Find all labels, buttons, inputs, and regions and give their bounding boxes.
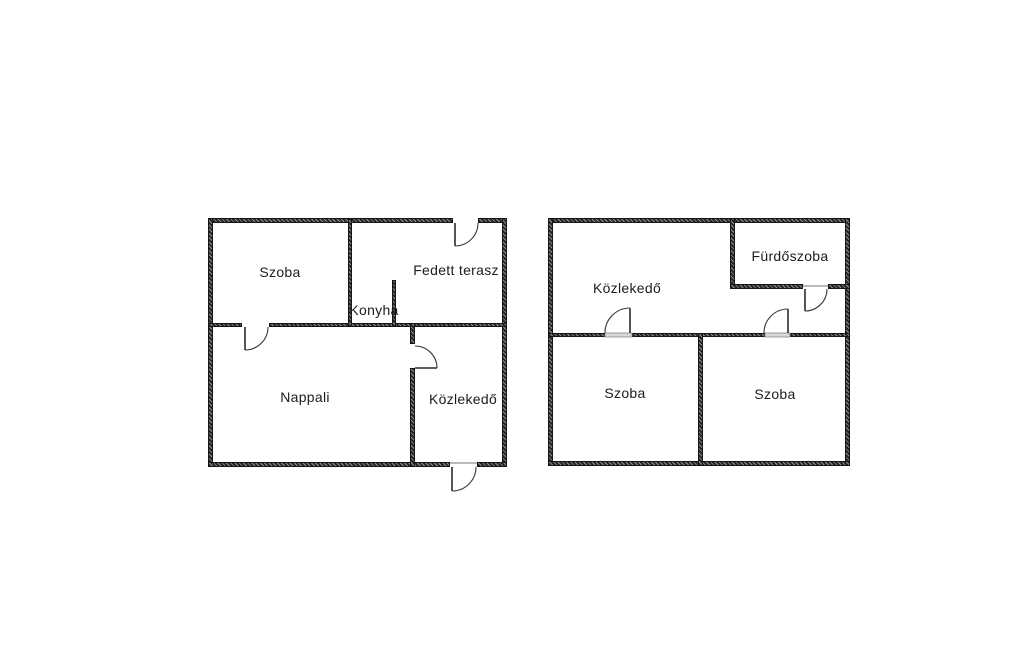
door-szoba-right [764, 309, 790, 337]
wall-mid-horizontal [548, 333, 605, 337]
wall-outer-top [208, 218, 453, 223]
room-label-furdoszoba: Fürdőszoba [752, 248, 829, 264]
wall-bathroom-bottom [730, 284, 803, 289]
door-symbols-layer [0, 0, 1024, 658]
wall-outer-right [845, 218, 850, 466]
wall-szoba-divider [698, 333, 703, 466]
wall-mid-horizontal [790, 333, 850, 337]
wall-mid-horizontal [269, 323, 507, 327]
room-label-konyha: Konyha [349, 302, 398, 318]
door-furdoszoba [803, 286, 828, 311]
wall-outer-left [208, 218, 213, 467]
room-label-nappali: Nappali [280, 389, 330, 405]
wall-nappali-kozlekedo [410, 323, 415, 344]
door-szoba-left [605, 308, 632, 337]
wall-mid-horizontal [208, 323, 242, 327]
room-label-szoba-2: Szoba [754, 386, 795, 402]
door-nappali [245, 327, 268, 350]
floor-plan-image: Szoba Fedett terasz Konyha Nappali Közle… [0, 0, 1024, 658]
room-label-szoba: Szoba [259, 264, 300, 280]
wall-outer-bottom [477, 462, 507, 467]
room-label-fedett-terasz: Fedett terasz [413, 262, 499, 278]
wall-bathroom-bottom [828, 284, 850, 289]
wall-bathroom-left [730, 218, 735, 289]
door-fedett-terasz [455, 223, 478, 246]
wall-outer-top [548, 218, 850, 223]
room-label-kozlekedo: Közlekedő [429, 391, 497, 407]
door-kozlekedo [415, 346, 437, 368]
room-label-kozlekedo: Közlekedő [593, 280, 661, 296]
room-label-szoba-1: Szoba [604, 385, 645, 401]
wall-outer-left [548, 218, 553, 466]
door-exterior-bottom [450, 463, 477, 491]
wall-outer-right [502, 218, 507, 467]
wall-nappali-kozlekedo [410, 368, 415, 467]
